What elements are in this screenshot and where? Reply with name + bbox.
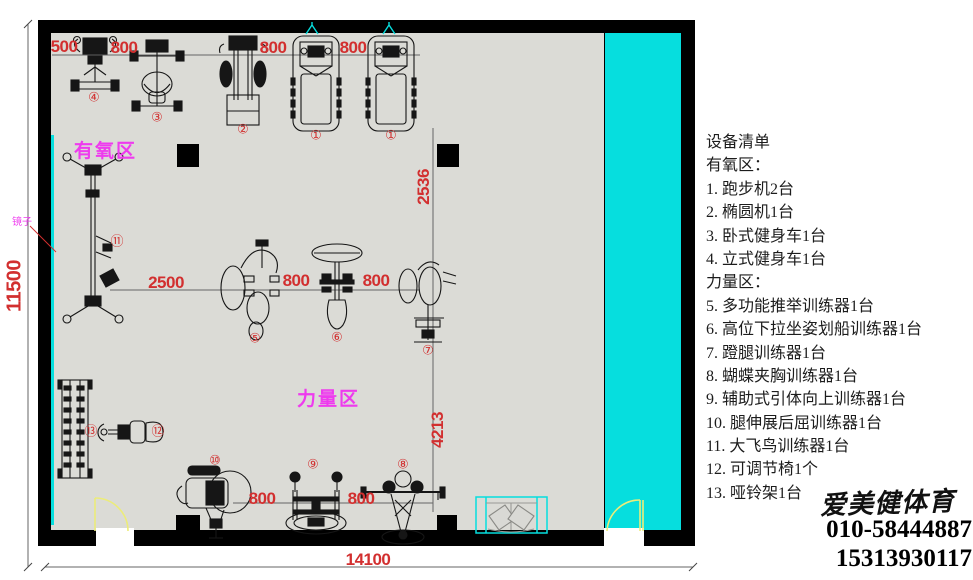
dim-bottom-gap2: 800 <box>348 489 375 509</box>
column <box>176 515 200 532</box>
dim-bottom-gap1: 800 <box>249 489 276 509</box>
zone-label-aerobic: 有氧区 <box>74 136 137 163</box>
column <box>437 144 459 167</box>
marker-leg-extension: ⑩ <box>209 454 221 469</box>
dim-top-gap3: 800 <box>340 38 367 58</box>
dim-top-offset: 500 <box>51 37 78 57</box>
list-item: 3. 卧式健身车1台 <box>706 225 973 248</box>
dim-total-height: 11500 <box>4 260 27 312</box>
marker-multi-press: ⑤ <box>249 332 261 347</box>
list-item: 4. 立式健身车1台 <box>706 248 973 271</box>
dim-vert-upper: 2536 <box>414 169 434 205</box>
list-item: 11. 大飞鸟训练器1台 <box>706 435 973 458</box>
phone-number-2: 15313930117 <box>836 545 972 573</box>
mirror-label: 镜子 <box>12 213 32 228</box>
wall-top <box>38 20 695 33</box>
dim-total-width: 14100 <box>346 550 391 570</box>
column <box>177 144 199 167</box>
list-item: 2. 椭圆机1台 <box>706 201 973 224</box>
stairwell-zone <box>604 33 682 530</box>
marker-assisted-pullup: ⑨ <box>307 458 319 473</box>
dim-top-gap2: 800 <box>260 38 287 58</box>
list-item: 10. 腿伸展后屈训练器1台 <box>706 412 973 435</box>
equipment-list-panel: 设备清单 有氧区： 1. 跑步机2台 2. 椭圆机1台 3. 卧式健身车1台 4… <box>706 131 973 505</box>
list-item: 6. 高位下拉坐姿划船训练器1台 <box>706 318 973 341</box>
column <box>437 515 457 532</box>
zone-label-strength: 力量区 <box>297 384 360 411</box>
marker-lat-row: ⑥ <box>331 331 343 346</box>
dim-mid-gap2: 800 <box>363 271 390 291</box>
marker-treadmill-2: ① <box>385 129 397 144</box>
floorplan-screenshot: 500 800 800 800 2500 800 800 2536 4213 8… <box>0 0 973 580</box>
marker-upright-bike: ④ <box>88 91 100 106</box>
door-opening-right <box>604 528 644 548</box>
phone-number-1: 010-58444887 <box>826 516 972 544</box>
list-item: 力量区： <box>706 271 973 294</box>
equipment-list-title: 设备清单 <box>706 131 973 154</box>
marker-recumbent-bike: ③ <box>151 111 163 126</box>
wall-left <box>38 20 51 546</box>
list-item: 7. 蹬腿训练器1台 <box>706 342 973 365</box>
dim-top-gap1: 800 <box>111 38 138 58</box>
mirror-strip <box>51 135 54 525</box>
marker-leg-press: ⑦ <box>422 344 434 359</box>
list-item: 8. 蝴蝶夹胸训练器1台 <box>706 365 973 388</box>
marker-cable-crossover: ⑪ <box>110 231 123 250</box>
marker-dumbbell-rack: ⑬ <box>84 421 97 440</box>
marker-pec-deck: ⑧ <box>397 458 409 473</box>
list-item: 9. 辅助式引体向上训练器1台 <box>706 388 973 411</box>
list-item: 有氧区： <box>706 154 973 177</box>
marker-treadmill-1: ① <box>310 129 322 144</box>
list-item: 1. 跑步机2台 <box>706 178 973 201</box>
wall-right <box>681 20 695 546</box>
dim-mid-span: 2500 <box>148 273 184 293</box>
list-item: 5. 多功能推举训练器1台 <box>706 295 973 318</box>
dim-mid-gap1: 800 <box>283 271 310 291</box>
dim-vert-lower: 4213 <box>428 412 448 448</box>
marker-adjustable-chair: ⑫ <box>151 421 164 440</box>
list-item: 12. 可调节椅1个 <box>706 458 973 481</box>
door-opening-left <box>96 528 134 548</box>
marker-elliptical: ② <box>237 123 249 138</box>
wall-bottom <box>38 530 695 546</box>
